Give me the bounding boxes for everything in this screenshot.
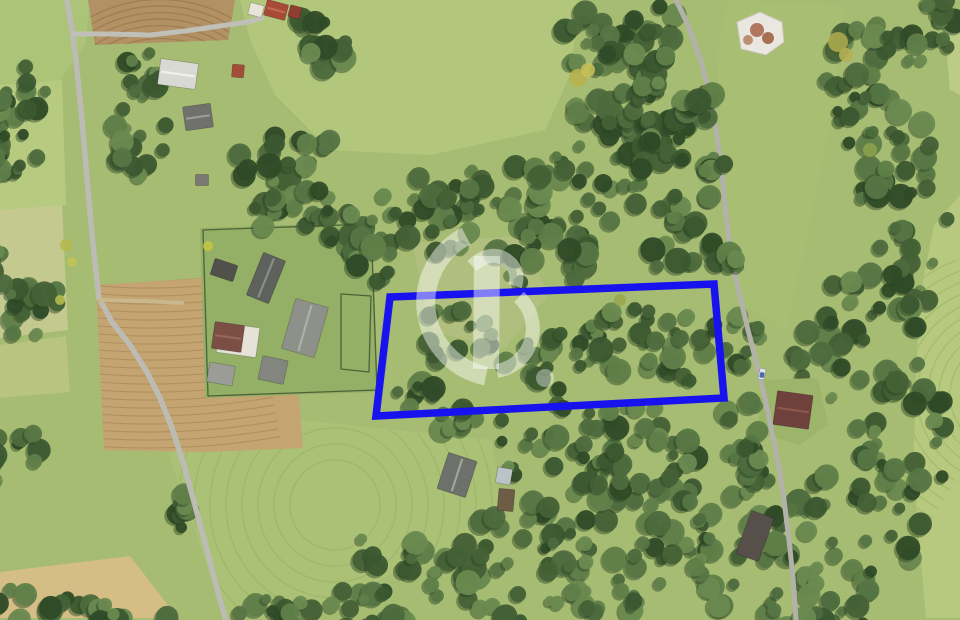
yellow-tree-6: [614, 294, 626, 306]
building-white-barn: [157, 58, 198, 89]
building-right-maroon-house: [773, 391, 813, 430]
building-pale-shed: [495, 467, 513, 485]
yellow-bush-3: [55, 295, 65, 305]
yellow-tree-2: [581, 63, 595, 77]
building-farmhouse-roof: [211, 322, 244, 353]
building-small-shed-tl: [196, 175, 209, 186]
car-roof: [760, 372, 765, 378]
yellow-bush-4: [203, 241, 213, 251]
building-ruin-garden: [497, 488, 515, 511]
ruin-rust-2: [762, 32, 774, 44]
yellow-tree-5: [863, 143, 877, 157]
ruin-rust-1: [750, 23, 764, 37]
ruin-rust-3: [743, 35, 753, 45]
yellow-bush-1: [60, 239, 72, 251]
building-red-shed: [231, 64, 244, 78]
building-shed-sw: [206, 362, 235, 386]
yellow-bush-2: [67, 257, 77, 267]
building-outbuilding: [258, 356, 288, 385]
aerial-photo-stage: [0, 0, 960, 620]
yellow-tree-4: [839, 48, 853, 62]
building-red-roof-tl-2: [288, 5, 303, 20]
building-gray-roof-house: [182, 103, 213, 131]
aerial-photo: [0, 0, 960, 620]
field-left-lower: [0, 336, 70, 398]
